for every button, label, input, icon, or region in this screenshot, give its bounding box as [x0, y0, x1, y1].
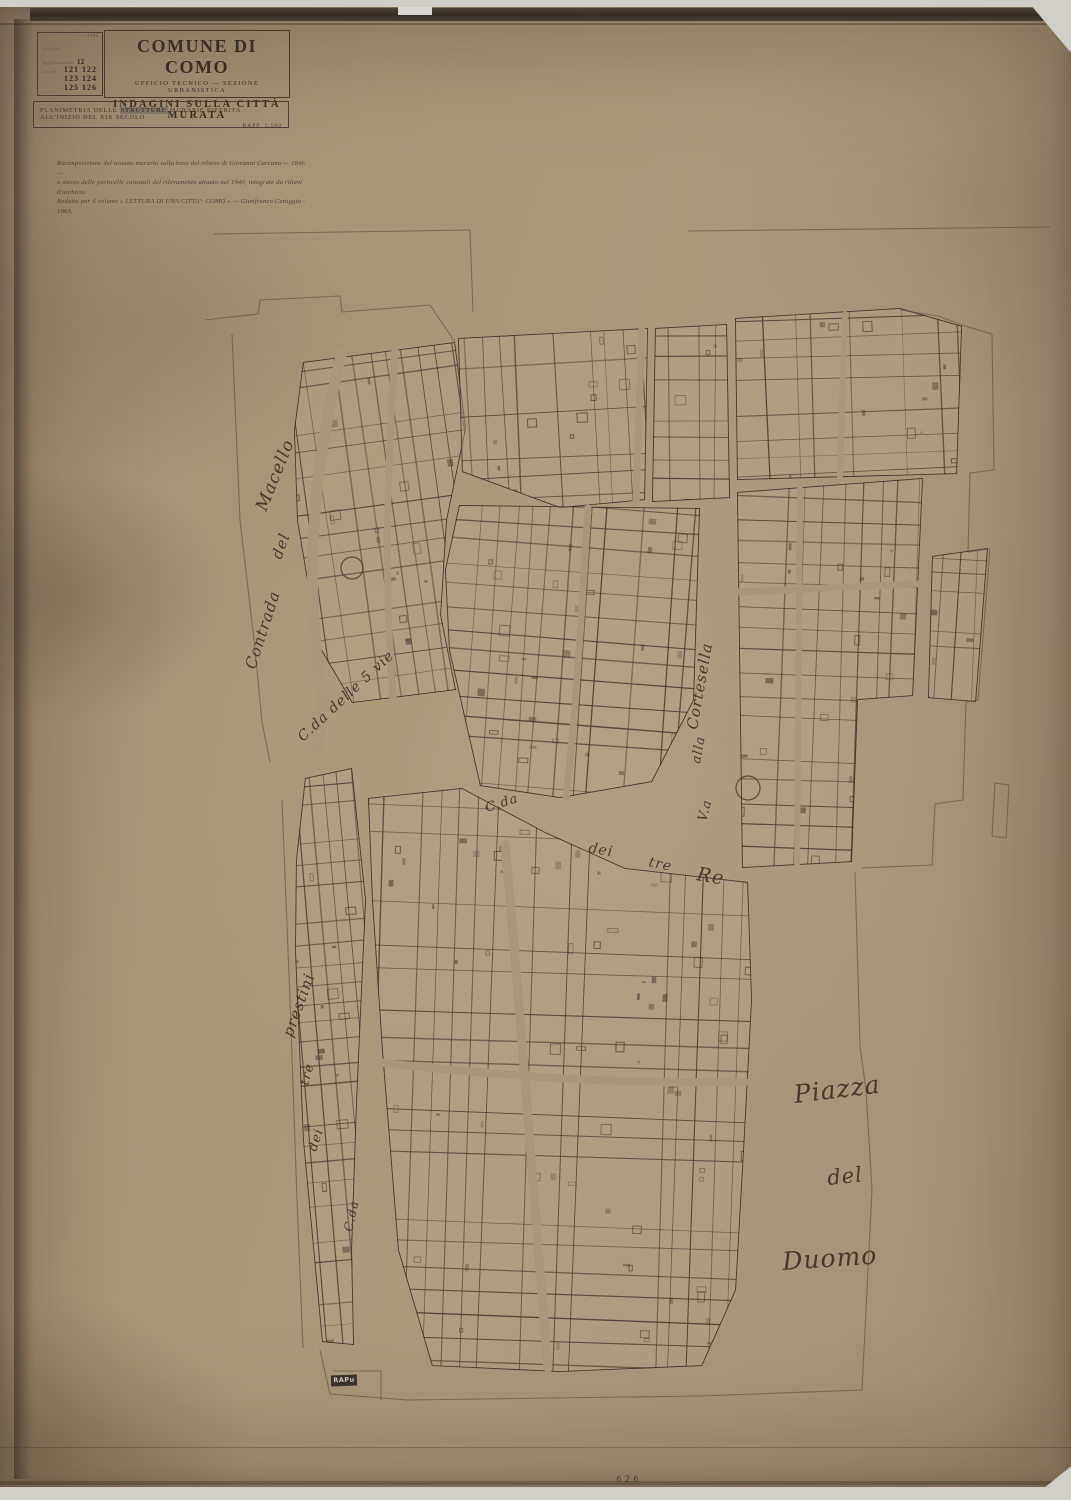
lane-inner-8	[797, 482, 800, 864]
street-label-piazza-del: del	[826, 1162, 864, 1190]
boundary-right	[862, 310, 994, 868]
city-block	[402, 265, 701, 565]
street-label-tre-re-tre: tre	[647, 854, 673, 875]
boundary-left	[232, 334, 270, 762]
map-scale: RAPP. 1:500	[40, 123, 282, 129]
street-label-cortesella: Cortesella	[683, 641, 716, 730]
pencil-annotation-top: 6-6	[583, 12, 598, 23]
street-label-cortesella-alla: alla	[689, 735, 709, 765]
street-label-prestini: prestini	[279, 971, 319, 1040]
source-note-line3: Redatta per il volume « LETTURA DI UNA C…	[57, 197, 309, 216]
building-fabric	[0, 227, 1071, 1428]
office-subtitle: UFFICIO TECNICO — SEZIONE URBANISTICA	[105, 80, 289, 94]
index-row-tavole: tavole	[43, 69, 56, 74]
city-block	[211, 730, 909, 1428]
city-block	[581, 423, 1071, 922]
lane-inner-6	[505, 845, 548, 1368]
rapu-stamp: RAPu	[331, 1375, 357, 1387]
lane-inner-7	[375, 1062, 745, 1083]
lane-macello	[312, 352, 342, 748]
street-label-tre-re-re: Re	[694, 863, 726, 890]
tape-fragment	[398, 7, 432, 15]
boundary-faint-top-left	[214, 230, 473, 312]
source-note: Ricomposizione del tessuto murario sulla…	[57, 159, 309, 216]
sheet-left-fold-shadow	[14, 19, 34, 1479]
survey-boundaries	[205, 227, 1050, 1400]
pencil-annotation-bottom: 6 2 6	[616, 1475, 639, 1485]
sheet-crease	[0, 1447, 1071, 1448]
street-label-duomo: Duomo	[780, 1240, 878, 1276]
lane-inner-3	[840, 314, 845, 477]
street-label-cinque-vie: C.da delle 5 vie	[295, 648, 398, 745]
boundary-left-lower	[282, 800, 303, 1348]
subtitle-prefix: PLANIMETRIA DELLE	[40, 107, 117, 114]
subtitle-box: PLANIMETRIA DELLE STRUTTURE MURARIE RIFE…	[33, 101, 289, 128]
street-label-prestini-tre: tre	[297, 1062, 317, 1087]
street-label-piazza: Piazza	[791, 1070, 882, 1110]
plate-numbers-line2: 123 124	[64, 74, 97, 83]
boundary-top	[205, 296, 455, 342]
street-label-prestini-dei: dei	[306, 1127, 327, 1154]
source-note-line2: a mezzo delle particelle catastali del r…	[57, 178, 309, 197]
archive-index-box: 1104 archivio aggiornamento12 tavole 121…	[37, 32, 103, 96]
street-label-tre-re-cda: C.da	[484, 791, 521, 816]
street-lanes	[312, 314, 918, 1368]
street-label-contrada: Contrada	[242, 588, 284, 671]
street-label-macello: Macello	[252, 437, 299, 515]
title-block: COMUNE DI COMO UFFICIO TECNICO — SEZIONE…	[104, 30, 290, 98]
lane-inner-2	[636, 330, 642, 502]
sheet-edge-shadow	[0, 23, 1071, 25]
map-details	[341, 557, 760, 800]
boundary-right-notch	[992, 783, 1009, 838]
boundary-bottom-piazza	[320, 872, 872, 1400]
index-row-archivio: archivio	[43, 46, 60, 51]
map-sheet: 1104 archivio aggiornamento12 tavole 121…	[0, 7, 1071, 1487]
source-note-line1: Ricomposizione del tessuto murario sulla…	[57, 159, 309, 178]
commune-title: COMUNE DI COMO	[105, 36, 289, 78]
lane-inner-5	[566, 508, 588, 797]
sheet-rolled-top-edge	[30, 8, 1049, 21]
city-block	[830, 497, 1071, 753]
lane-inner-1	[387, 348, 395, 698]
subtitle-bold-word: STRUTTURE	[120, 107, 168, 114]
courtyard-circle-1	[341, 557, 363, 579]
city-block	[124, 266, 635, 777]
city-block	[557, 277, 825, 547]
city-map-drawing: Contrada del Macello C.da delle 5 vie V.…	[0, 0, 1071, 1500]
street-labels: Contrada del Macello C.da delle 5 vie V.…	[242, 437, 882, 1276]
street-label-del: del	[268, 531, 294, 562]
city-block	[684, 227, 1012, 558]
street-label-cortesella-via: V.a	[695, 798, 715, 823]
street-label-prestini-cda: C.da	[341, 1199, 361, 1233]
boundary-faint-top-right	[688, 227, 1050, 231]
city-block	[0, 695, 692, 1418]
index-corner-number: 1104	[87, 34, 99, 39]
plate-numbers-line3: 125 126	[64, 83, 97, 92]
lane-inner-4	[739, 584, 918, 592]
plate-numbers-line1: 121 122	[64, 65, 97, 74]
street-label-tre-re-dei: dei	[587, 840, 614, 860]
index-row1-label: archivio	[43, 46, 60, 51]
index-row3-label: tavole	[43, 69, 56, 74]
sheet-bottom-edge	[0, 1481, 1071, 1485]
plate-numbers: 121 122 123 124 125 126	[64, 65, 97, 92]
city-block	[368, 444, 777, 856]
courtyard-circle-2	[736, 776, 760, 800]
